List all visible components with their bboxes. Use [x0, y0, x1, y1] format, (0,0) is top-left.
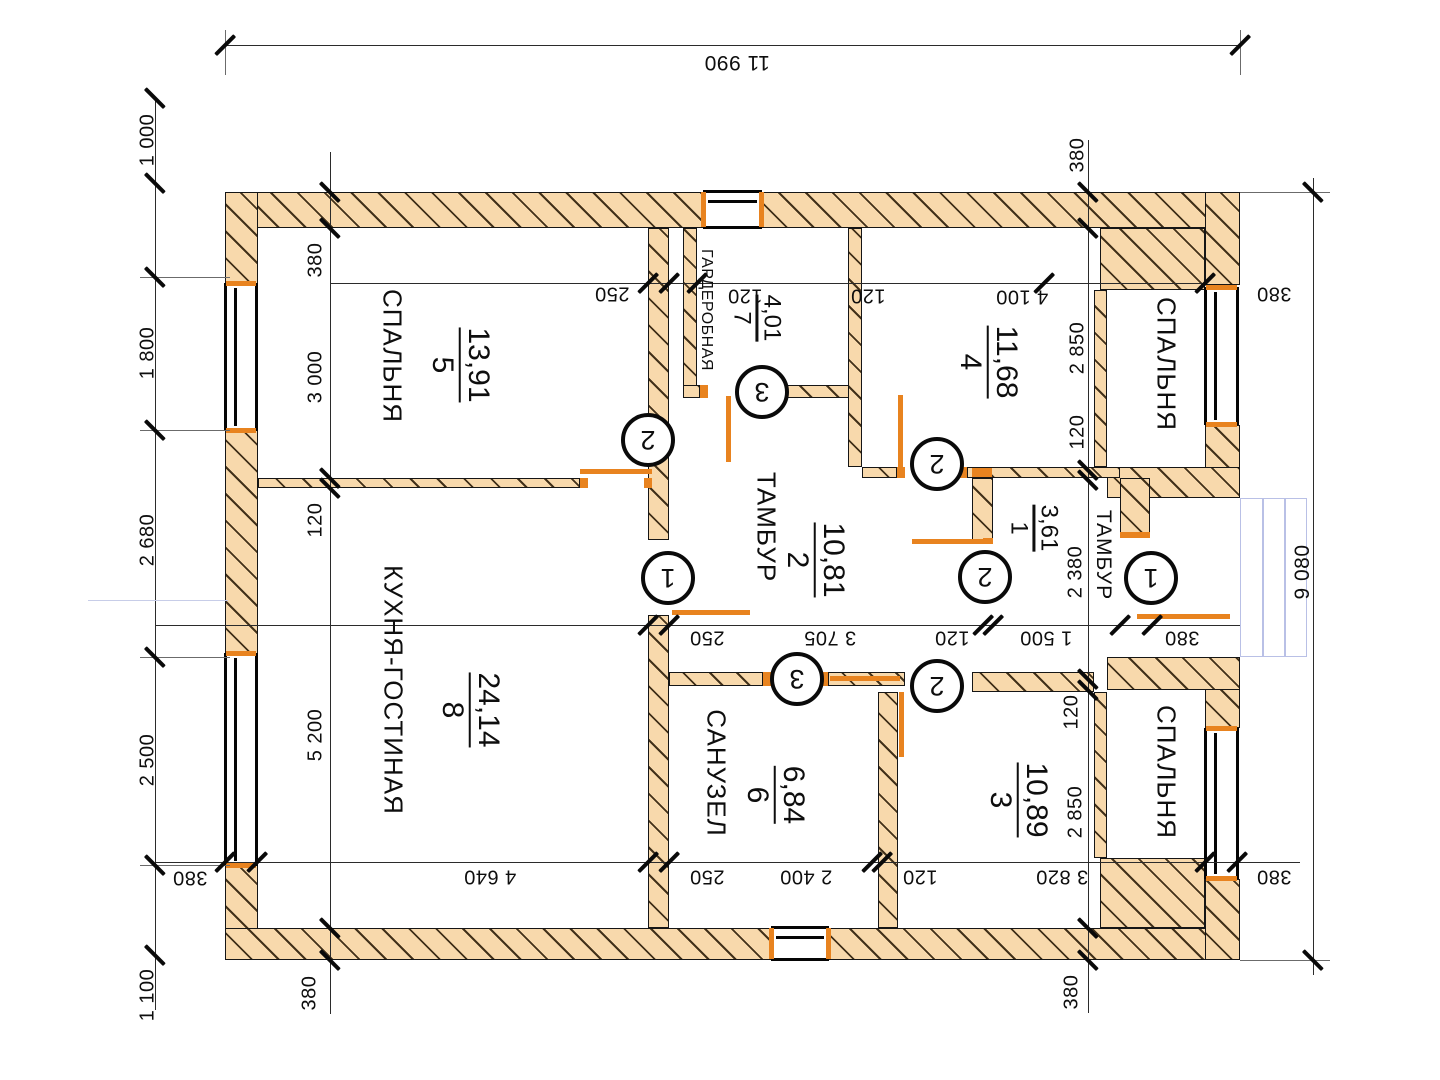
- door-jamb: [972, 468, 992, 477]
- dim-label: 4 640: [464, 865, 517, 888]
- dim-label: 2 380: [1065, 546, 1088, 599]
- room-name-tambour-1: ТАМБУР: [1091, 510, 1115, 600]
- opening-marker: 1: [1124, 551, 1178, 605]
- room-number: 7: [730, 311, 755, 324]
- room-area: 6,84: [777, 766, 809, 824]
- floor-plan: 11 990 250 120 120 4 100 380 250 3 705 1…: [0, 0, 1440, 1080]
- window-kitchen: [224, 653, 258, 866]
- dim-label: 1 800: [137, 327, 160, 380]
- door-jamb: [983, 538, 993, 544]
- wall-tambour1-right: [1120, 478, 1150, 538]
- dim-label: 120: [935, 626, 970, 649]
- door-leaf-wardrobe: [726, 396, 731, 462]
- dim-label: 120: [1067, 415, 1090, 450]
- wall-corner-bottom-right: [1100, 858, 1205, 928]
- dim-label: 120: [851, 284, 886, 307]
- room-name-bedroom-tr: СПАЛЬНЯ: [1151, 297, 1182, 431]
- dim-label: 4 100: [996, 285, 1049, 308]
- room-area: 10,89: [1020, 762, 1052, 837]
- wall-bedroomTR-left: [1094, 290, 1107, 467]
- room-tag-wardrobe-7: 4,017: [730, 295, 785, 342]
- door-leaf-bathroom: [830, 676, 900, 681]
- wall-wardrobe-left: [683, 228, 697, 390]
- wall-bottom-b: [827, 928, 1240, 960]
- opening-marker: 2: [958, 550, 1012, 604]
- wall-wardrobe-bottom-a: [683, 385, 700, 398]
- section-line: [88, 600, 228, 601]
- opening-marker: 1: [641, 551, 695, 605]
- door-jamb: [644, 478, 652, 488]
- door-leaf-room4: [898, 395, 903, 470]
- dim-label: 380: [1257, 865, 1292, 888]
- window-wardrobe: [703, 190, 762, 229]
- door-leaf-bedroom5: [580, 469, 652, 474]
- room-tag-tambour-2: 10,812: [781, 522, 849, 597]
- dim-label: 3 000: [305, 351, 328, 404]
- dim-label: 380: [299, 976, 322, 1011]
- room-name-wardrobe-7: ГАРДЕРОБНАЯ: [697, 249, 715, 371]
- wall-corner-top-right: [1100, 228, 1205, 290]
- wall-bedroomBR-left: [1094, 692, 1107, 858]
- dim-label: 2 850: [1067, 322, 1090, 375]
- window-bedroomTR: [1204, 287, 1239, 425]
- wall-left-a: [225, 192, 258, 285]
- dim-label: 250: [595, 282, 630, 305]
- opening-marker: 2: [910, 437, 964, 491]
- room-area: 11,68: [990, 326, 1022, 399]
- room-number: 6: [741, 787, 773, 804]
- room-number: 2: [781, 552, 813, 569]
- room-name-kitchen-8: КУХНЯ-ГОСТИНАЯ: [378, 565, 409, 815]
- room-area: 24,14: [472, 672, 504, 747]
- wall-hall-top-a: [862, 467, 897, 478]
- room-number: 8: [436, 702, 468, 719]
- dim-label: 380: [1061, 975, 1084, 1010]
- room-tag-bedroom-5: 13,915: [426, 327, 494, 402]
- room-name-bathroom-6: САНУЗЕЛ: [701, 709, 732, 836]
- dim-label: 9 080: [1291, 544, 1315, 599]
- wall-lower-band-c: [972, 672, 1094, 692]
- wall-tambour1-left: [972, 478, 993, 540]
- dim-label: 120: [903, 865, 938, 888]
- dim-label: 1 500: [1020, 626, 1073, 649]
- dim-label: 11 990: [704, 50, 770, 74]
- room-area: 4,01: [759, 295, 784, 342]
- dimension-line: [330, 283, 1205, 284]
- dim-label: 5 200: [305, 709, 328, 762]
- wall-central-b: [648, 615, 669, 928]
- dim-label: 250: [690, 865, 725, 888]
- wall-bottom-a: [225, 928, 773, 960]
- window-bathroom: [771, 926, 829, 961]
- door-leaf-entrance: [1137, 614, 1230, 619]
- door-jamb: [897, 467, 905, 478]
- dim-label: 3 820: [1036, 865, 1089, 888]
- room-tag-kitchen-8: 24,148: [436, 672, 504, 747]
- room-area: 3,61: [1036, 505, 1061, 552]
- room-area: 13,91: [462, 327, 494, 402]
- opening-marker: 3: [770, 652, 824, 706]
- wall-right-a: [1205, 192, 1240, 285]
- wall-top-right: [760, 192, 1240, 228]
- wall-wardrobe-right: [848, 228, 862, 467]
- dim-label: 3 705: [804, 626, 857, 649]
- room-tag-tambour-1: 3,611: [1007, 505, 1062, 552]
- room-number: 5: [426, 357, 458, 374]
- dim-label: 120: [1061, 695, 1084, 730]
- room-tag-bathroom-6: 6,846: [741, 766, 809, 824]
- wall-porch-bottom: [1107, 657, 1240, 690]
- room-name-tambour-2: ТАМБУР: [751, 472, 782, 582]
- dim-label: 250: [690, 626, 725, 649]
- door-leaf-room3: [899, 692, 904, 757]
- dim-label: 2 500: [137, 734, 160, 787]
- room-number: 3: [984, 792, 1016, 809]
- opening-marker: 2: [910, 659, 964, 713]
- wall-top-left: [225, 192, 705, 228]
- wall-lower-band-a: [669, 672, 763, 686]
- dimension-line: [225, 45, 1240, 46]
- wall-left-b: [225, 430, 258, 655]
- dimension-line: [330, 152, 331, 1014]
- room-name-bedroom-5: СПАЛЬНЯ: [377, 289, 408, 423]
- opening-marker: 2: [621, 413, 675, 467]
- room-tag-room-3: 10,893: [984, 762, 1052, 837]
- dim-label: 380: [173, 866, 208, 889]
- wall-bathroom-right: [878, 692, 898, 928]
- door-jamb: [1120, 532, 1150, 538]
- room-area: 10,81: [817, 522, 849, 597]
- room-name-bedroom-br: СПАЛЬНЯ: [1151, 705, 1182, 839]
- dim-label: 1 000: [137, 114, 160, 167]
- dim-label: 2 850: [1065, 786, 1088, 839]
- window-bedroom5: [224, 283, 258, 431]
- extension-line: [225, 30, 226, 75]
- door-jamb: [700, 385, 708, 398]
- door-leaf-tambour1: [912, 539, 987, 544]
- room-number: 4: [954, 354, 986, 371]
- dim-label: 380: [1067, 138, 1090, 173]
- door-jamb: [580, 478, 588, 488]
- extension-line: [1240, 30, 1241, 75]
- room-tag-room-4: 11,684: [954, 326, 1022, 399]
- dim-label: 380: [1257, 282, 1292, 305]
- wall-kitchen-top: [258, 478, 580, 488]
- room-number: 1: [1007, 521, 1032, 534]
- door-leaf-kitchen: [672, 610, 750, 615]
- dim-label: 380: [1165, 626, 1200, 649]
- dimension-line: [155, 862, 1300, 863]
- opening-marker: 3: [735, 365, 789, 419]
- wall-right-d: [1205, 879, 1240, 960]
- dim-label: 1 100: [137, 969, 160, 1022]
- dim-label: 2 400: [780, 865, 833, 888]
- dim-label: 2 680: [137, 514, 160, 567]
- dim-label: 120: [305, 503, 328, 538]
- dim-label: 380: [305, 243, 328, 278]
